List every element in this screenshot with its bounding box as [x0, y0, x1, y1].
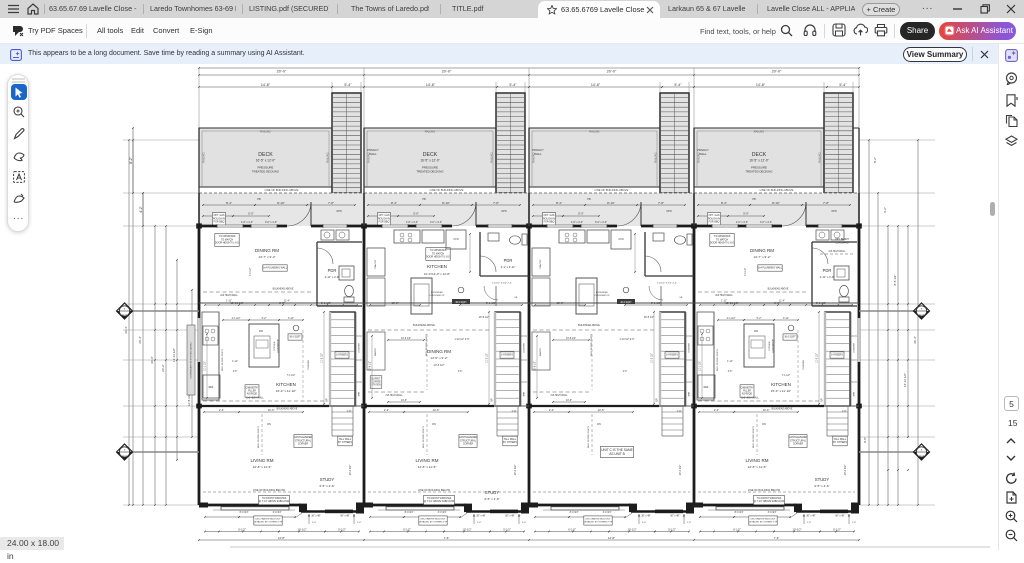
svg-text:PB: PB — [752, 198, 756, 201]
svg-text:1'-0": 1'-0" — [312, 522, 317, 524]
svg-text:LINE OF BUILDING BELOW: LINE OF BUILDING BELOW — [748, 489, 781, 492]
svg-text:DECORATIVE BULKOUT: DECORATIVE BULKOUT — [256, 517, 282, 520]
svg-text:COFFEE: COFFEE — [371, 381, 381, 383]
svg-text:2'-6": 2'-6" — [728, 371, 733, 373]
svg-text:DN: DN — [597, 423, 601, 426]
svg-text:LINE OF BUILDING BELOW: LINE OF BUILDING BELOW — [253, 489, 286, 492]
svg-text:BULKHEAD ABOVE: BULKHEAD ABOVE — [768, 288, 789, 291]
svg-text:DECK: DECK — [752, 152, 767, 158]
svg-text:LIVING RM: LIVING RM — [250, 458, 273, 463]
svg-text:10'-0 1/2": 10'-0 1/2" — [679, 465, 682, 476]
svg-text:14'-8": 14'-8" — [756, 83, 766, 87]
svg-text:EXTENDED: EXTENDED — [431, 292, 443, 294]
svg-text:13'-7" x 9'-2": 13'-7" x 9'-2" — [258, 255, 275, 259]
svg-text:15'-4" x 11'-10": 15'-4" x 11'-10" — [276, 389, 297, 393]
svg-text:2x6 HIGH WALL: 2x6 HIGH WALL — [741, 397, 759, 400]
svg-text:3'-0 3/4": 3'-0 3/4" — [603, 511, 612, 514]
svg-text:KITCHEN: KITCHEN — [769, 341, 771, 350]
svg-text:7'-9 1/2": 7'-9 1/2" — [745, 268, 747, 277]
svg-text:TREATED DECKING: TREATED DECKING — [416, 169, 444, 173]
svg-text:2x6 HIGH WALL: 2x6 HIGH WALL — [715, 294, 733, 297]
svg-text:9'-8": 9'-8" — [863, 437, 867, 443]
svg-text:36.6 SQFT: 36.6 SQFT — [620, 302, 632, 304]
svg-text:PANTRY: PANTRY — [539, 347, 542, 356]
svg-text:PB: PB — [257, 198, 261, 201]
svg-text:COUNTER: COUNTER — [308, 360, 310, 370]
svg-text:8'-1 1/2": 8'-1 1/2" — [816, 301, 826, 305]
svg-text:FOR BBQ: FOR BBQ — [544, 221, 555, 224]
svg-text:14 RISERS: 14 RISERS — [336, 354, 348, 356]
svg-text:16'-11 1/2": 16'-11 1/2" — [903, 373, 907, 387]
svg-text:7'-8": 7'-8" — [658, 201, 664, 205]
svg-text:2x6 HIGH WALL: 2x6 HIGH WALL — [386, 394, 404, 397]
svg-text:14 RISERS: 14 RISERS — [666, 354, 678, 356]
svg-text:10'-0 1/2": 10'-0 1/2" — [514, 465, 517, 476]
svg-text:7'-9 1/2": 7'-9 1/2" — [250, 268, 252, 277]
svg-text:6'-1/2": 6'-1/2" — [238, 527, 246, 531]
svg-text:36" x 48": 36" x 48" — [641, 516, 650, 518]
svg-text:2'-6": 2'-6" — [458, 371, 463, 373]
svg-text:PB: PB — [422, 198, 426, 201]
svg-text:FILLER: FILLER — [743, 390, 751, 392]
svg-text:RAILING: RAILING — [425, 130, 435, 134]
svg-text:ENG. FLOOR JOISTS: ENG. FLOOR JOISTS — [423, 426, 425, 448]
svg-text:8'-10": 8'-10" — [277, 201, 285, 205]
svg-text:1'-0": 1'-0" — [357, 522, 362, 524]
svg-text:2'-4": 2'-4" — [549, 408, 554, 412]
svg-text:TREATED DECKING: TREATED DECKING — [745, 169, 773, 173]
svg-text:1'-0": 1'-0" — [852, 522, 857, 524]
svg-text:COUNTERTOP: COUNTERTOP — [278, 338, 280, 353]
svg-text:8'-0 3/4": 8'-0 3/4" — [240, 511, 249, 514]
svg-text:14 RISERS: 14 RISERS — [831, 354, 843, 356]
svg-text:BRM: BRM — [854, 391, 856, 396]
svg-text:5'-4": 5'-4" — [509, 83, 517, 87]
svg-text:1'-6 1/2" 4'-1/2" 2'-2": 1'-6 1/2" 4'-1/2" 2'-2" — [657, 283, 677, 285]
svg-text:8'-0 3/4": 8'-0 3/4" — [570, 511, 579, 514]
svg-text:34'-4": 34'-4" — [913, 336, 917, 344]
svg-text:BRM: BRM — [689, 391, 691, 396]
svg-text:3'-0" x 4'-0": 3'-0" x 4'-0" — [265, 221, 277, 224]
svg-text:11'-1 1/2": 11'-1 1/2" — [700, 361, 702, 371]
svg-text:T/O FRONT WINDOWS: T/O FRONT WINDOWS — [427, 498, 452, 500]
svg-text:ENG. FLOOR JOISTS: ENG. FLOOR JOISTS — [753, 426, 755, 448]
svg-text:8'-2": 8'-2" — [873, 157, 877, 163]
svg-text:BY OTHERS: BY OTHERS — [338, 441, 352, 444]
svg-text:UP: UP — [325, 398, 329, 402]
svg-text:REF: REF — [704, 386, 709, 389]
svg-text:TREATED DECKING: TREATED DECKING — [252, 169, 280, 173]
svg-text:6'-5" x 4'-6": 6'-5" x 4'-6" — [814, 484, 829, 488]
svg-text:13'-6": 13'-6" — [566, 399, 572, 402]
svg-text:16'-5" x 12'-0": 16'-5" x 12'-0" — [256, 159, 276, 163]
svg-text:COUNTER: COUNTER — [854, 343, 856, 353]
svg-text:3'-0" x 4'-0": 3'-0" x 4'-0" — [595, 221, 607, 224]
svg-text:4'-6" x 4'-0": 4'-6" x 4'-0" — [241, 221, 253, 224]
svg-text:RAILING: RAILING — [818, 152, 822, 162]
svg-text:13'-5" x 9'-2": 13'-5" x 9'-2" — [430, 356, 447, 360]
svg-text:A-13: A-13 — [919, 454, 924, 457]
svg-text:5'-2": 5'-2" — [757, 317, 762, 320]
svg-text:DINING RM: DINING RM — [750, 248, 774, 253]
svg-text:13'-4 1/2": 13'-4 1/2" — [434, 363, 445, 367]
svg-text:12'-8" x 11'-6": 12'-8" x 11'-6" — [253, 465, 272, 469]
svg-text:36" x 48": 36" x 48" — [806, 516, 815, 518]
svg-text:8'-10": 8'-10" — [607, 201, 615, 205]
svg-text:11'-2 1/2": 11'-2 1/2" — [322, 353, 324, 363]
svg-text:KITCHEN: KITCHEN — [274, 341, 276, 350]
svg-text:T/O FRONT WINDOWS: T/O FRONT WINDOWS — [262, 498, 287, 500]
svg-text:10'-0": 10'-0" — [556, 301, 563, 305]
svg-text:BULKHEAD ABOVE: BULKHEAD ABOVE — [772, 408, 793, 411]
svg-text:KITCHEN: KITCHEN — [276, 382, 296, 387]
svg-text:PANTRY: PANTRY — [539, 259, 542, 268]
svg-text:PDR: PDR — [823, 268, 832, 273]
svg-text:RAILING: RAILING — [260, 130, 270, 134]
svg-text:10'-0": 10'-0" — [391, 301, 398, 305]
svg-text:10'-1/2": 10'-1/2" — [792, 527, 801, 531]
svg-text:ENG. FLOOR JOISTS: ENG. FLOOR JOISTS — [588, 426, 590, 448]
svg-text:4'-2": 4'-2" — [139, 205, 143, 213]
svg-text:8'-4": 8'-4" — [556, 201, 562, 205]
svg-text:10'-1/2": 10'-1/2" — [627, 527, 636, 531]
svg-text:STUDY: STUDY — [815, 477, 830, 482]
svg-text:13'-7" x 9'-2": 13'-7" x 9'-2" — [753, 255, 770, 259]
svg-text:60" x 48": 60" x 48" — [340, 516, 349, 518]
svg-text:16'-5" x 12'-0": 16'-5" x 12'-0" — [749, 159, 769, 163]
svg-text:60" x 48": 60" x 48" — [670, 516, 679, 518]
svg-text:1'-0": 1'-0" — [522, 522, 527, 524]
svg-text:EXTENDED: EXTENDED — [596, 292, 608, 294]
svg-text:UP: UP — [820, 398, 824, 402]
svg-text:UP: UP — [655, 398, 659, 402]
svg-text:10'-0 1/2": 10'-0 1/2" — [349, 465, 352, 476]
svg-text:3'-0 3/4": 3'-0 3/4" — [768, 511, 777, 514]
svg-text:15'-10 1/2": 15'-10 1/2" — [230, 301, 243, 305]
svg-text:2x4 PLUMBING WALL: 2x4 PLUMBING WALL — [263, 266, 288, 269]
svg-text:1'-0": 1'-0" — [687, 522, 692, 524]
svg-text:4'-6" x 4'-0": 4'-6" x 4'-0" — [406, 221, 418, 224]
svg-text:A-13: A-13 — [122, 313, 127, 316]
svg-text:4'-1 1/2": 4'-1 1/2" — [727, 317, 736, 320]
svg-text:DN: DN — [432, 423, 436, 426]
svg-text:OPN: OPN — [831, 210, 836, 213]
svg-text:CABINETRY: CABINETRY — [740, 386, 754, 389]
svg-text:OPN: OPN — [336, 210, 341, 213]
svg-text:4'-2": 4'-2" — [883, 207, 887, 213]
svg-text:8'-10": 8'-10" — [442, 201, 450, 205]
svg-text:T/O FRONT WINDOWS: T/O FRONT WINDOWS — [757, 498, 782, 500]
svg-text:14'-8": 14'-8" — [426, 83, 436, 87]
svg-text:2'-8": 2'-8" — [774, 301, 780, 305]
svg-text:7'-8": 7'-8" — [823, 201, 829, 205]
svg-text:3'-0 3/4": 3'-0 3/4" — [438, 511, 447, 514]
svg-text:DECORATIVE BULKOUT: DECORATIVE BULKOUT — [751, 517, 777, 520]
svg-text:BRM: BRM — [524, 391, 526, 396]
svg-text:STATION: STATION — [371, 383, 381, 386]
svg-text:DOOR HEIGHT U.N.O: DOOR HEIGHT U.N.O — [215, 242, 239, 245]
svg-text:BULKHEAD ABOVE: BULKHEAD ABOVE — [578, 324, 600, 327]
svg-text:DECK: DECK — [423, 152, 438, 158]
svg-text:BULKHEAD ABOVE: BULKHEAD ABOVE — [413, 324, 435, 327]
svg-text:PRIVACY: PRIVACY — [532, 148, 544, 152]
svg-text:PANTRY: PANTRY — [374, 259, 377, 268]
svg-text:10'-1/2": 10'-1/2" — [462, 527, 471, 531]
svg-text:2'-6": 2'-6" — [233, 371, 238, 373]
svg-text:36" x 48": 36" x 48" — [476, 516, 485, 518]
svg-text:COUNTER: COUNTER — [524, 343, 526, 353]
svg-text:11'-2 1/2": 11'-2 1/2" — [652, 353, 654, 363]
svg-text:6'-5" x 4'-6": 6'-5" x 4'-6" — [484, 497, 499, 501]
svg-text:5'-0": 5'-0" — [578, 212, 584, 216]
svg-text:PANTRY: PANTRY — [374, 347, 377, 356]
svg-text:7'-6": 7'-6" — [444, 536, 450, 540]
svg-text:2'-8": 2'-8" — [279, 301, 285, 305]
svg-text:10'-0 1/2": 10'-0 1/2" — [844, 465, 847, 476]
svg-text:11'-4": 11'-4" — [779, 301, 785, 303]
svg-text:RAILING: RAILING — [654, 152, 658, 162]
svg-text:RAILING: RAILING — [490, 152, 494, 162]
svg-text:PRIVACY: PRIVACY — [697, 148, 709, 152]
svg-text:8'-5 1/2": 8'-5 1/2" — [893, 275, 897, 286]
svg-text:DETAILED BY OTHERS TYP: DETAILED BY OTHERS TYP — [749, 520, 778, 523]
svg-text:WALL: WALL — [699, 152, 707, 156]
svg-text:8'-1 1/2": 8'-1 1/2" — [321, 301, 331, 305]
svg-text:BY OTHERS: BY OTHERS — [833, 441, 847, 444]
svg-text:2'-4": 2'-4" — [384, 408, 389, 412]
svg-text:FILLER: FILLER — [248, 390, 256, 392]
svg-text:FOR BBQ: FOR BBQ — [379, 221, 390, 224]
svg-text:8'-2": 8'-2" — [129, 156, 133, 164]
svg-text:5'-0": 5'-0" — [248, 212, 254, 216]
svg-text:2'-6": 2'-6" — [623, 371, 628, 373]
svg-text:DINING RM: DINING RM — [427, 349, 451, 354]
svg-text:2'-4": 2'-4" — [714, 408, 719, 412]
svg-text:DECORATIVE BULKOUT: DECORATIVE BULKOUT — [421, 517, 447, 520]
svg-text:8'-0 3/4": 8'-0 3/4" — [735, 511, 744, 514]
svg-text:14'-8": 14'-8" — [261, 83, 271, 87]
svg-text:A-13: A-13 — [122, 454, 127, 457]
svg-text:UP: UP — [490, 398, 494, 402]
svg-text:CABINETRY: CABINETRY — [245, 386, 259, 389]
svg-text:8'-4": 8'-4" — [226, 201, 232, 205]
svg-text:13'-6 1/2": 13'-6 1/2" — [401, 337, 411, 340]
svg-text:DETAILED BY OTHERS TYP: DETAILED BY OTHERS TYP — [584, 520, 613, 523]
svg-text:10'-0"/14'-0" x 12'-8": 10'-0"/14'-0" x 12'-8" — [424, 272, 450, 276]
svg-text:CORNER: CORNER — [793, 443, 804, 446]
svg-text:12'-8": 12'-8" — [608, 536, 615, 540]
svg-text:6'-1/2": 6'-1/2" — [568, 527, 576, 531]
svg-text:@ 7'-10" ABOVE SUBFLOOR: @ 7'-10" ABOVE SUBFLOOR — [754, 500, 785, 503]
svg-text:BULKHEAD ABOVE: BULKHEAD ABOVE — [273, 288, 294, 291]
svg-text:COUNTERTOP: COUNTERTOP — [429, 295, 445, 297]
svg-text:COUNTER: COUNTER — [689, 343, 691, 353]
svg-text:11'-2 1/2": 11'-2 1/2" — [817, 353, 819, 363]
svg-text:1'-6": 1'-6" — [347, 410, 352, 413]
svg-text:OVN: OVN — [454, 239, 459, 241]
svg-text:2'-4": 2'-4" — [219, 408, 224, 412]
svg-text:4'-6" x 4'-0": 4'-6" x 4'-0" — [736, 221, 748, 224]
svg-text:@ 7'-10" ABOVE SUBFLOOR: @ 7'-10" ABOVE SUBFLOOR — [259, 500, 290, 503]
svg-text:15'-10 1/2": 15'-10 1/2" — [725, 301, 738, 305]
svg-text:2x6 HIGH WALL: 2x6 HIGH WALL — [220, 294, 238, 297]
svg-text:5'-4": 5'-4" — [674, 83, 682, 87]
svg-text:ENG. FLOOR JOISTS: ENG. FLOOR JOISTS — [717, 349, 719, 371]
svg-text:12'-8" x 11'-6": 12'-8" x 11'-6" — [748, 465, 767, 469]
svg-text:1'-10 1/2" 2'-5": 1'-10 1/2" 2'-5" — [620, 339, 635, 341]
svg-text:LIVING RM: LIVING RM — [745, 458, 768, 463]
svg-text:KITCHEN: KITCHEN — [427, 264, 447, 269]
svg-text:LINE OF BUILDING ABOVE: LINE OF BUILDING ABOVE — [430, 188, 464, 192]
svg-text:PDR: PDR — [504, 258, 513, 263]
svg-text:BRM: BRM — [359, 391, 361, 396]
svg-text:WALL: WALL — [369, 152, 377, 156]
svg-text:36.6 SQFT: 36.6 SQFT — [289, 336, 301, 338]
svg-text:4'-6" x 4'-0": 4'-6" x 4'-0" — [571, 221, 583, 224]
svg-text:OPN: OPN — [501, 210, 506, 213]
svg-text:4'-11" x 4'-8": 4'-11" x 4'-8" — [820, 275, 835, 279]
svg-text:13'-6": 13'-6" — [268, 408, 275, 412]
svg-text:8'-0 3/4": 8'-0 3/4" — [405, 511, 414, 514]
svg-text:DOOR HEIGHT U.N.O: DOOR HEIGHT U.N.O — [426, 256, 450, 259]
svg-text:1'-6 1/2" 4'-1/2" 2'-2": 1'-6 1/2" 4'-1/2" 2'-2" — [492, 283, 512, 285]
svg-text:OPN: OPN — [666, 210, 671, 213]
svg-text:60" x 48": 60" x 48" — [835, 516, 844, 518]
svg-text:@ 7'-10" ABOVE SUBFLOOR: @ 7'-10" ABOVE SUBFLOOR — [424, 500, 455, 503]
svg-text:5'-2": 5'-2" — [262, 317, 267, 320]
svg-text:RAILING: RAILING — [589, 130, 599, 134]
svg-text:CORNER: CORNER — [298, 443, 309, 446]
svg-text:14'-8": 14'-8" — [591, 83, 601, 87]
svg-text:6'-5" x 4'-6": 6'-5" x 4'-6" — [319, 484, 334, 488]
svg-text:2x6 HIGH WALL: 2x6 HIGH WALL — [551, 394, 569, 397]
svg-text:PRIVACY: PRIVACY — [367, 148, 379, 152]
svg-text:AS REQD: AS REQD — [247, 392, 258, 395]
svg-text:CUPBOARD: CUPBOARD — [835, 241, 848, 244]
svg-text:11'-4": 11'-4" — [284, 301, 290, 303]
svg-text:LIVING RM: LIVING RM — [415, 458, 438, 463]
svg-text:1'-0": 1'-0" — [642, 522, 647, 524]
svg-text:COUNTER: COUNTER — [803, 360, 805, 370]
svg-text:8'-4": 8'-4" — [721, 201, 727, 205]
svg-text:3'-0 3/4": 3'-0 3/4" — [273, 511, 282, 514]
svg-text:LINE OF BUILDING ABOVE: LINE OF BUILDING ABOVE — [595, 188, 629, 192]
svg-text:LINE OF BUILDING ABOVE: LINE OF BUILDING ABOVE — [265, 188, 299, 192]
svg-text:2x6 HIGH WALL: 2x6 HIGH WALL — [246, 397, 264, 400]
svg-text:36.6 SQFT: 36.6 SQFT — [784, 336, 796, 338]
svg-text:36'-4": 36'-4" — [138, 336, 142, 344]
svg-text:20'-0": 20'-0" — [277, 70, 287, 74]
svg-text:RAILING: RAILING — [754, 130, 764, 134]
svg-text:RAILING: RAILING — [326, 152, 330, 162]
svg-text:OPT. BENCH: OPT. BENCH — [835, 239, 849, 241]
svg-text:LINE OF BUILDING ABOVE: LINE OF BUILDING ABOVE — [760, 188, 794, 192]
svg-text:REF: REF — [209, 386, 214, 389]
svg-text:DN: DN — [762, 423, 766, 426]
svg-text:36" x 48": 36" x 48" — [311, 516, 320, 518]
svg-text:20'-0": 20'-0" — [607, 70, 617, 74]
svg-text:KITCHEN: KITCHEN — [771, 382, 791, 387]
svg-text:16'-5" x 12'-0": 16'-5" x 12'-0" — [420, 159, 440, 163]
svg-text:DN: DN — [267, 423, 271, 426]
svg-text:COORDINATE W/ KITCHEN LAYOUT: COORDINATE W/ KITCHEN LAYOUT — [190, 341, 193, 379]
svg-text:PB: PB — [587, 198, 591, 201]
svg-text:10'-1/2": 10'-1/2" — [297, 527, 306, 531]
svg-text:1'-6": 1'-6" — [842, 410, 847, 413]
svg-text:5'-0": 5'-0" — [413, 212, 419, 216]
svg-text:12'-6 1/2": 12'-6 1/2" — [370, 361, 372, 371]
svg-text:DETAILED BY OTHERS TYP: DETAILED BY OTHERS TYP — [254, 520, 283, 523]
svg-text:11'-1 1/2": 11'-1 1/2" — [205, 361, 207, 371]
svg-text:16'-5 1/2": 16'-5 1/2" — [479, 316, 490, 319]
svg-text:DECK: DECK — [258, 152, 273, 158]
svg-text:12'-6 1/2": 12'-6 1/2" — [535, 361, 537, 371]
svg-text:3'-11": 3'-11" — [288, 317, 294, 320]
svg-text:CORNER: CORNER — [463, 443, 474, 446]
svg-text:1'-10 1/2" 2'-5": 1'-10 1/2" 2'-5" — [455, 339, 470, 341]
svg-text:ENG. FLOOR JOISTS: ENG. FLOOR JOISTS — [258, 426, 260, 448]
svg-text:5'-4": 5'-4" — [839, 83, 847, 87]
svg-text:FOR BBQ: FOR BBQ — [214, 221, 225, 224]
svg-text:7'-6": 7'-6" — [774, 536, 780, 540]
svg-text:2x6 HIGH WALL: 2x6 HIGH WALL — [829, 250, 847, 253]
svg-text:DINING RM: DINING RM — [255, 248, 279, 253]
svg-text:3'-11": 3'-11" — [783, 317, 789, 320]
svg-text:16'-5 1/2": 16'-5 1/2" — [644, 316, 655, 319]
svg-text:DOOR HEIGHT U.N.O: DOOR HEIGHT U.N.O — [710, 242, 734, 245]
svg-text:PDR: PDR — [328, 268, 337, 273]
svg-text:11'-2 1/2": 11'-2 1/2" — [487, 353, 489, 363]
svg-text:BUFFET: BUFFET — [372, 378, 382, 380]
svg-text:DECORATIVE BULKOUT: DECORATIVE BULKOUT — [586, 517, 612, 520]
svg-text:7'-8": 7'-8" — [493, 201, 499, 205]
svg-text:1'-6": 1'-6" — [677, 410, 682, 413]
svg-text:2x4 PLUMBING WALL: 2x4 PLUMBING WALL — [758, 266, 783, 269]
svg-text:1'-0": 1'-0" — [807, 522, 812, 524]
svg-text:3'-0" x 4'-0": 3'-0" x 4'-0" — [760, 221, 772, 224]
svg-text:1'-6": 1'-6" — [512, 410, 517, 413]
svg-text:STUDY: STUDY — [485, 490, 500, 495]
svg-text:13'-6": 13'-6" — [401, 399, 407, 402]
svg-text:8'-1 1/2": 8'-1 1/2" — [486, 301, 496, 305]
svg-text:5'-4": 5'-4" — [344, 83, 352, 87]
svg-text:BULKHEAD ABOVE: BULKHEAD ABOVE — [277, 408, 298, 411]
svg-text:BY OTHERS: BY OTHERS — [503, 441, 517, 444]
svg-text:STUDY: STUDY — [320, 477, 335, 482]
svg-text:COUNTERTOP: COUNTERTOP — [594, 295, 610, 297]
svg-text:13'-6 1/2": 13'-6 1/2" — [566, 337, 576, 340]
svg-text:12'-8 1/2": 12'-8 1/2" — [187, 394, 191, 407]
svg-text:DETAILED BY OTHERS TYP: DETAILED BY OTHERS TYP — [419, 520, 448, 523]
svg-text:6'-1/2": 6'-1/2" — [733, 527, 741, 531]
svg-text:8'-4": 8'-4" — [391, 201, 397, 205]
svg-text:A-13: A-13 — [919, 313, 924, 316]
svg-text:13'-6": 13'-6" — [433, 408, 440, 412]
svg-text:20'-0": 20'-0" — [442, 70, 452, 74]
svg-text:13'-6": 13'-6" — [598, 408, 605, 412]
svg-text:4'-1" x 4'-11": 4'-1" x 4'-11" — [501, 265, 516, 269]
svg-text:4'-1 1/2": 4'-1 1/2" — [232, 317, 241, 320]
svg-text:12'-8": 12'-8" — [278, 536, 285, 540]
svg-text:7'-1 1/2": 7'-1 1/2" — [782, 375, 791, 377]
svg-text:20'-0": 20'-0" — [772, 70, 782, 74]
svg-text:AS UNIT B: AS UNIT B — [609, 452, 625, 456]
svg-text:12'-8" x 11'-6": 12'-8" x 11'-6" — [418, 465, 437, 469]
svg-text:8'-10": 8'-10" — [772, 201, 780, 205]
svg-text:5'-0": 5'-0" — [743, 212, 749, 216]
svg-text:4'-11" x 4'-8": 4'-11" x 4'-8" — [325, 275, 340, 279]
svg-text:FOR BBQ: FOR BBQ — [709, 221, 720, 224]
